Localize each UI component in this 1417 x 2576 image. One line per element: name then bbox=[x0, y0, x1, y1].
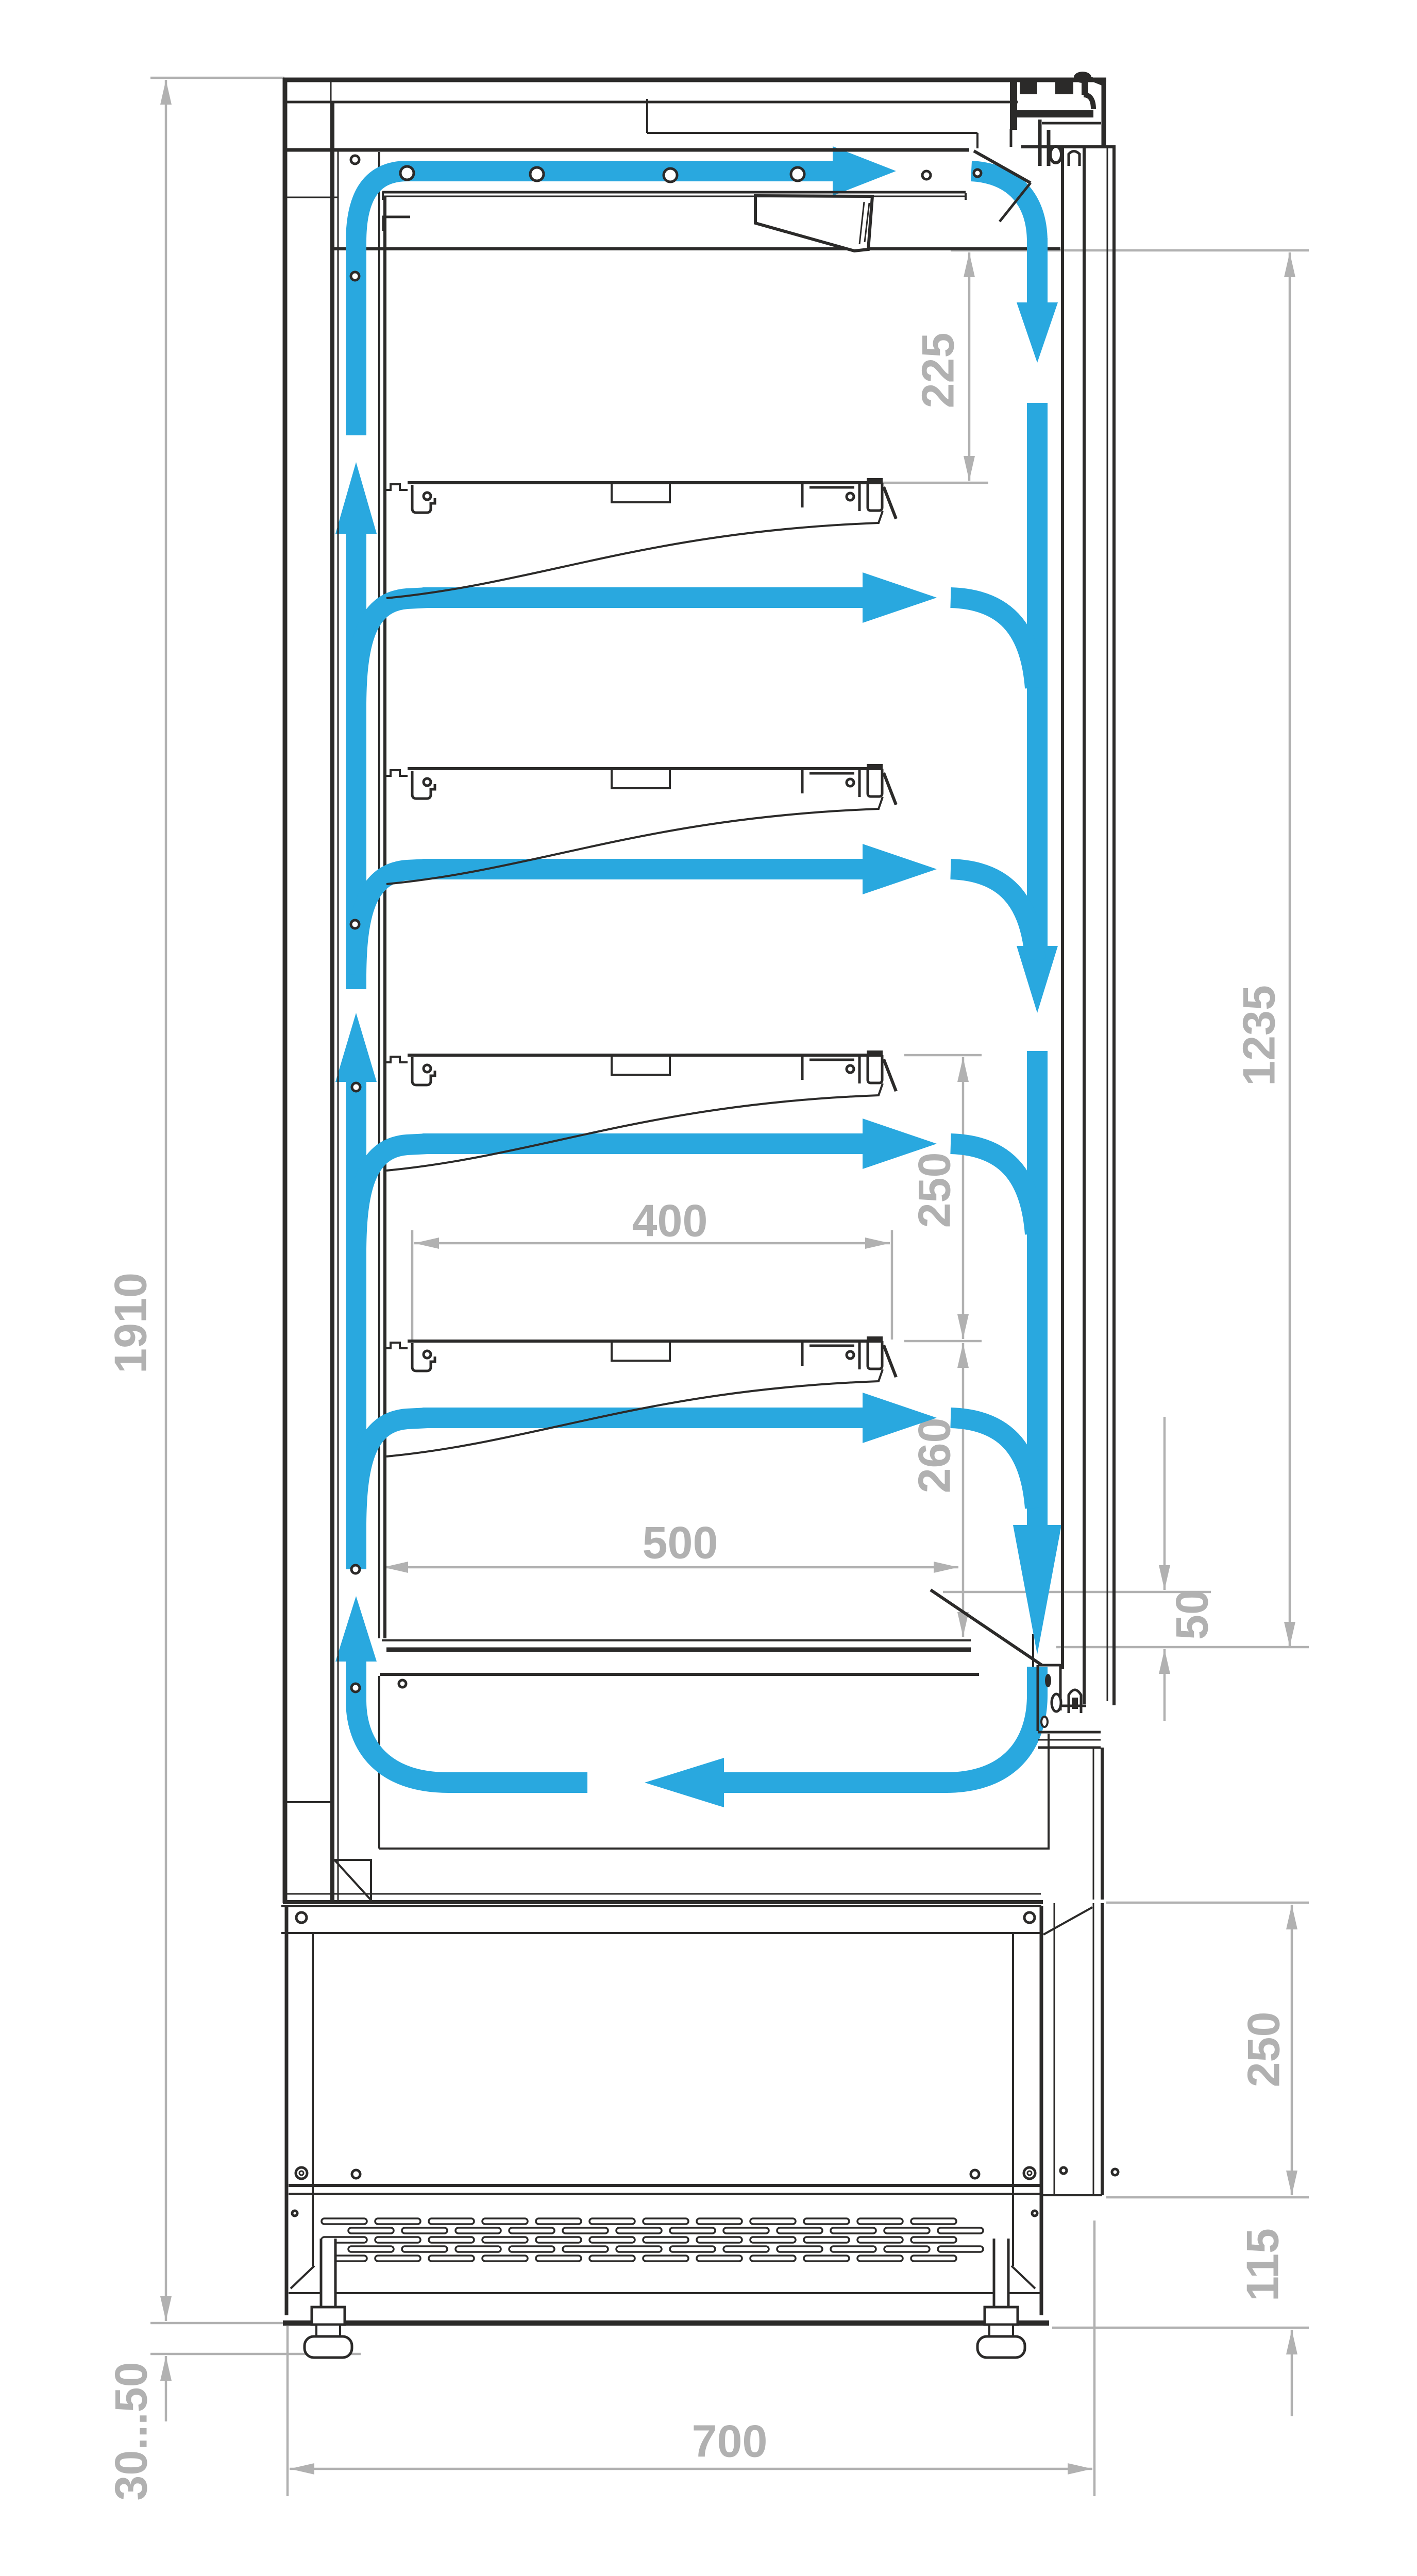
svg-text:700: 700 bbox=[692, 2416, 768, 2467]
svg-text:260: 260 bbox=[909, 1418, 960, 1494]
svg-text:115: 115 bbox=[1237, 2228, 1288, 2301]
svg-text:250: 250 bbox=[1238, 2012, 1289, 2088]
svg-text:1235: 1235 bbox=[1234, 985, 1285, 1086]
svg-text:250: 250 bbox=[909, 1153, 960, 1228]
svg-text:1910: 1910 bbox=[105, 1273, 156, 1374]
svg-text:500: 500 bbox=[643, 1517, 718, 1568]
svg-text:400: 400 bbox=[632, 1195, 708, 1246]
svg-text:50: 50 bbox=[1167, 1589, 1218, 1640]
svg-text:225: 225 bbox=[913, 333, 964, 409]
svg-text:30...50: 30...50 bbox=[106, 2362, 157, 2500]
